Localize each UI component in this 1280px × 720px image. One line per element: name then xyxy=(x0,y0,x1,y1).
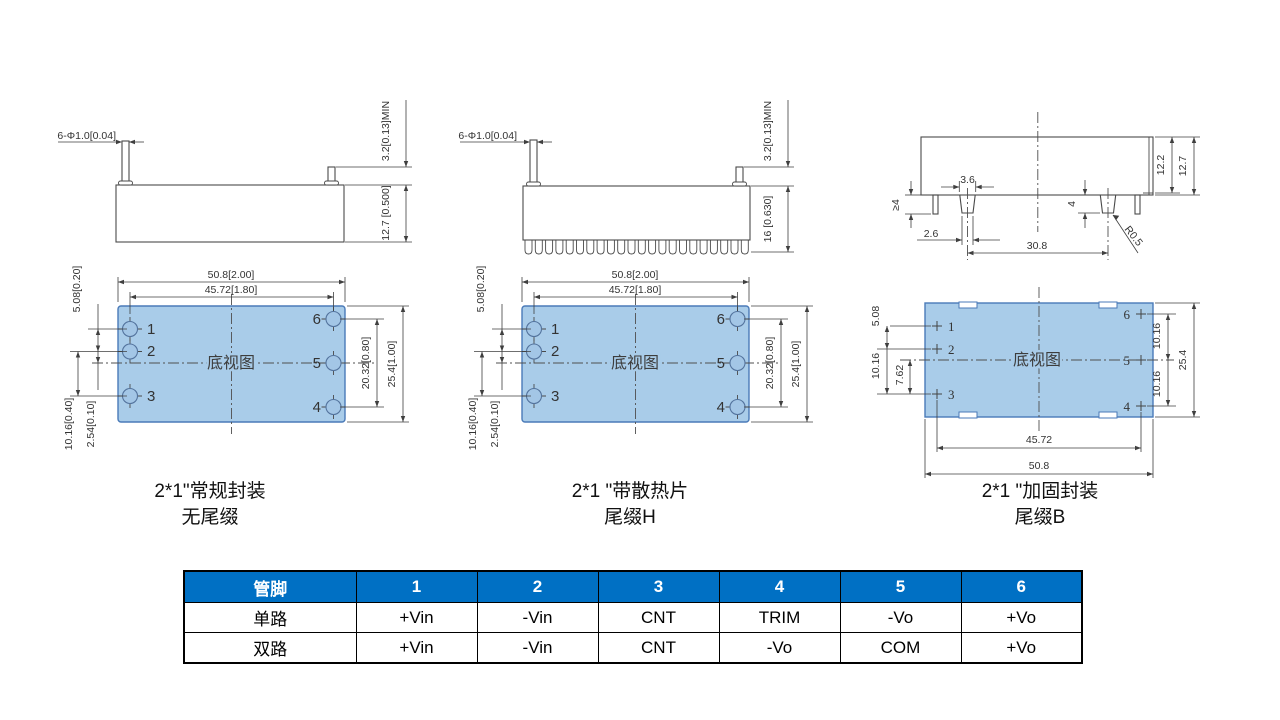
pin-diameter-label: 6-Φ1.0[0.04] xyxy=(57,130,116,142)
pin-4-number: 4 xyxy=(313,399,321,416)
pin-1-number: 1 xyxy=(147,321,155,338)
table-cell: CNT xyxy=(598,603,719,633)
pin-1-number: 1 xyxy=(551,321,559,338)
dim-25-4: 25.4[1.00] xyxy=(386,341,398,388)
dim-width-outer: 50.8[2.00] xyxy=(208,269,255,281)
module3-caption-line2: 尾缀B xyxy=(880,505,1200,531)
dim-r0-5: R0.5 xyxy=(1122,224,1145,249)
dim-4: 4 xyxy=(1066,201,1078,207)
dim-25-4: 25.4 xyxy=(1177,350,1189,371)
table-cell: -Vin xyxy=(477,603,598,633)
pin-6-number: 6 xyxy=(1124,307,1131,322)
dim-10-16: 10.16[0.40] xyxy=(63,398,75,451)
pin-5-number: 5 xyxy=(313,355,321,372)
column-header-2: 2 xyxy=(477,571,598,603)
row-label: 双路 xyxy=(184,633,356,664)
module2-side-dims: 3.2[0.13]MIN 16 [0.630] xyxy=(744,100,794,252)
pin-1-number: 1 xyxy=(948,319,955,334)
table-cell: +Vin xyxy=(356,603,477,633)
module2-side-view: 6-Φ1.0[0.04] 3.2[0.13]MIN 16 [0.630] xyxy=(458,100,794,254)
module1-caption-line1: 2*1"常规封装 xyxy=(50,479,370,505)
pin-assignment-table: 管脚 1 2 3 4 5 6 单路 +Vin -Vin CNT TRIM -Vo… xyxy=(183,570,1083,664)
module1-side-view: 6-Φ1.0[0.04] 3.2[0.13]MIN 12.7 [0.500] xyxy=(57,100,412,242)
pin-2-number: 2 xyxy=(948,342,955,357)
module2-caption-line2: 尾缀H xyxy=(470,505,790,531)
dim-5-08: 5.08 xyxy=(870,306,882,327)
heatsink-fins xyxy=(525,240,748,254)
dim-2-54: 2.54[0.10] xyxy=(489,401,501,448)
table-cell: -Vo xyxy=(840,603,961,633)
dim-12-2: 12.2 xyxy=(1155,155,1167,176)
table-cell: COM xyxy=(840,633,961,664)
dim-width-inner: 45.72[1.80] xyxy=(205,284,258,296)
dim-12-7: 12.7 xyxy=(1177,156,1189,177)
column-header-5: 5 xyxy=(840,571,961,603)
pin-3-number: 3 xyxy=(147,388,155,405)
pin-diameter-label: 6-Φ1.0[0.04] xyxy=(458,130,517,142)
module2-caption: 2*1 "带散热片 尾缀H xyxy=(470,479,790,531)
pin-2-number: 2 xyxy=(551,343,559,360)
module1-side-dims: 3.2[0.13]MIN 12.7 [0.500] xyxy=(336,100,412,242)
table-cell: -Vo xyxy=(719,633,840,664)
column-header-3: 3 xyxy=(598,571,719,603)
pin-length-min-label: 3.2[0.13]MIN xyxy=(762,101,774,161)
pin-3-number: 3 xyxy=(551,388,559,405)
module1-caption: 2*1"常规封装 无尾缀 xyxy=(50,479,370,531)
pin-5-number: 5 xyxy=(1124,353,1131,368)
body-height-label: 12.7 [0.500] xyxy=(380,185,392,241)
pin-diameter-callout: 6-Φ1.0[0.04] xyxy=(57,130,144,144)
module3-caption: 2*1 "加固封装 尾缀B xyxy=(880,479,1200,531)
dim-10-16-r2: 10.16 xyxy=(1151,371,1163,397)
bottom-view-label: 底视图 xyxy=(1013,351,1061,369)
dim-5-08: 5.08[0.20] xyxy=(71,266,83,313)
dim-20-32: 20.32[0.80] xyxy=(764,337,776,390)
module2-caption-line1: 2*1 "带散热片 xyxy=(470,479,790,505)
module3-bottom-view: 1 2 3 6 5 4 底视图 5.08 10.16 7.62 10.16 10… xyxy=(870,287,1200,478)
table-row-dual: 双路 +Vin -Vin CNT -Vo COM +Vo xyxy=(184,633,1082,664)
bottom-view-label: 底视图 xyxy=(611,354,659,372)
row-label: 单路 xyxy=(184,603,356,633)
dim-7-62: 7.62 xyxy=(894,365,906,386)
pin-4-number: 4 xyxy=(717,399,725,416)
dim-2-54: 2.54[0.10] xyxy=(85,401,97,448)
dim-20-32: 20.32[0.80] xyxy=(360,337,372,390)
datasheet-page: 6-Φ1.0[0.04] 3.2[0.13]MIN 12.7 [0.500] xyxy=(0,0,1280,720)
module1-bottom-view: 1 2 3 6 5 4 底视图 50.8[2.00] 45.72[1.80] 5… xyxy=(63,266,409,451)
pin-3-number: 3 xyxy=(948,387,955,402)
table-cell: TRIM xyxy=(719,603,840,633)
table-header-row: 管脚 1 2 3 4 5 6 xyxy=(184,571,1082,603)
table-row-single: 单路 +Vin -Vin CNT TRIM -Vo +Vo xyxy=(184,603,1082,633)
column-header-4: 4 xyxy=(719,571,840,603)
dim-ge4: ≥4 xyxy=(890,199,902,211)
column-header-1: 1 xyxy=(356,571,477,603)
dim-2-6: 2.6 xyxy=(924,228,939,240)
dim-30-8: 30.8 xyxy=(1027,240,1048,252)
table-cell: +Vo xyxy=(961,633,1082,664)
dim-5-08: 5.08[0.20] xyxy=(475,266,487,313)
pin-4-number: 4 xyxy=(1124,399,1131,414)
dim-10-16-left: 10.16 xyxy=(870,353,882,379)
dim-3-6: 3.6 xyxy=(960,174,975,186)
module3-side-view: 3.6 ≥4 2.6 4 30.8 12.2 12.7 xyxy=(890,112,1200,260)
module1-caption-line2: 无尾缀 xyxy=(50,505,370,531)
pin-6-number: 6 xyxy=(717,311,725,328)
table-cell: -Vin xyxy=(477,633,598,664)
pin-5-number: 5 xyxy=(717,355,725,372)
pin-2-number: 2 xyxy=(147,343,155,360)
module2-bottom-view: 1 2 3 6 5 4 底视图 50.8[2.00] 45.72[1.80] 5… xyxy=(467,266,813,451)
column-header-pin: 管脚 xyxy=(184,571,356,603)
pin-length-min-label: 3.2[0.13]MIN xyxy=(380,101,392,161)
dim-50-8: 50.8 xyxy=(1029,460,1050,472)
dim-10-16-r1: 10.16 xyxy=(1151,323,1163,349)
dim-width-outer: 50.8[2.00] xyxy=(612,269,659,281)
pin-6-number: 6 xyxy=(313,311,321,328)
body-height-label: 16 [0.630] xyxy=(762,196,774,243)
module3-caption-line1: 2*1 "加固封装 xyxy=(880,479,1200,505)
dim-width-inner: 45.72[1.80] xyxy=(609,284,662,296)
bottom-view-label: 底视图 xyxy=(207,354,255,372)
dim-25-4: 25.4[1.00] xyxy=(790,341,802,388)
dim-10-16: 10.16[0.40] xyxy=(467,398,479,451)
table-cell: +Vo xyxy=(961,603,1082,633)
dim-45-72: 45.72 xyxy=(1026,434,1052,446)
table-cell: +Vin xyxy=(356,633,477,664)
column-header-6: 6 xyxy=(961,571,1082,603)
package-drawings: 6-Φ1.0[0.04] 3.2[0.13]MIN 12.7 [0.500] xyxy=(0,0,1280,560)
pin-diameter-callout: 6-Φ1.0[0.04] xyxy=(458,130,552,144)
table-cell: CNT xyxy=(598,633,719,664)
